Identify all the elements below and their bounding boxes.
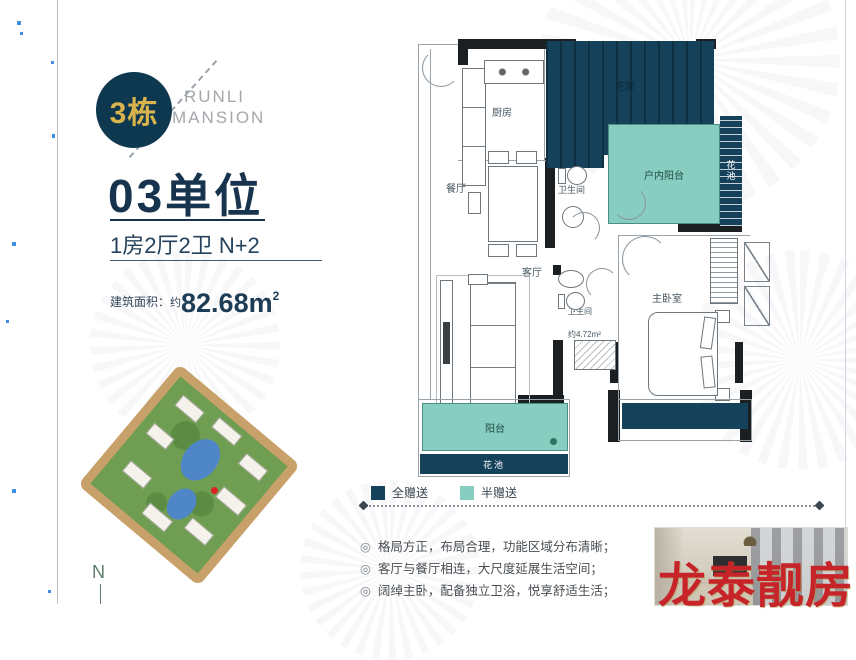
chair [516,151,537,164]
sink [558,270,584,288]
area-approx: 约 [170,297,181,309]
apartment-left-wall [430,49,431,399]
artifact-mark [17,21,21,25]
artifact-mark [48,590,51,593]
feature-text: 阔绰主卧，配备独立卫浴，悦享舒适生活； [378,580,616,602]
artifact-mark [52,134,55,138]
feature-text: 客厅与餐厅相连，大尺度延展生活空间； [378,558,603,580]
kitchen-label: 厨房 [492,104,512,119]
sofa-armrest [468,274,488,285]
built-area: 建筑面积：约82.68m2 [110,288,279,319]
chair [516,244,537,257]
legend-half-gift-swatch [460,486,474,500]
area-superscript: 2 [273,289,280,303]
chair [468,192,481,214]
indoor-balcony-label: 户内阳台 [644,167,684,182]
bullet-icon: ◎ [360,536,371,558]
toilet-tank [558,294,565,309]
feature-item: ◎ 格局方正，布局合理，功能区域分布清晰； [360,536,615,558]
wall-segment [735,342,743,383]
bedroom-wall [618,235,619,403]
wall-segment [545,158,555,248]
artifact-mark [20,32,23,35]
right-page-edge [845,0,846,604]
entrance-door-arc [422,49,460,87]
chair [488,151,509,164]
wall-segment [458,49,468,65]
left-page-edge [57,0,58,604]
flower-bed-bottom-zone: 花池 [420,454,568,474]
chair [488,244,509,257]
bathroom-lower-area: 约4.72m² [568,329,601,340]
area-label: 建筑面积： [110,295,170,309]
flower-bed-right-zone: 花池 [720,116,742,226]
bullet-icon: ◎ [360,558,371,580]
legend-full-gift-swatch [371,486,385,500]
brand-line1: RUNLI [172,86,265,107]
bedroom-door-arc [622,236,668,282]
stove [484,60,544,84]
feature-item: ◎ 客厅与餐厅相连，大尺度延展生活空间； [360,558,615,580]
flyer-page: { "badge": { "building": "3栋" }, "brand"… [0,0,856,604]
separator-end-dot [815,501,825,511]
toilet [567,166,587,185]
bedroom-wall [618,235,750,236]
master-bedroom-label: 主卧室 [652,290,682,305]
bullet-icon: ◎ [360,580,371,602]
flower-bed-right-label: 花池 [725,160,738,182]
bathroom-upper-label: 卫生间 [558,183,585,196]
flower-rack-zone [546,120,604,168]
kitchen-cabinet [462,68,486,186]
sofa [470,282,516,410]
building-badge-label: 3栋 [110,88,159,132]
shower [574,340,616,370]
wardrobe [710,238,738,304]
flower-rack-label: 花架 [615,78,635,93]
brand-line2: MANSION [172,108,265,127]
toilet-tank [558,168,566,184]
artifact-mark [51,61,54,64]
legend-half-gift-label: 半赠送 [481,484,517,501]
unit-layout: 1房2厅2卫 N+2 [110,228,260,260]
area-value: 82.68m [181,288,273,318]
balcony-zone: 阳台 [422,403,568,451]
dotted-separator [366,505,818,507]
balcony-dot [550,438,557,445]
layout-underline [110,260,322,261]
brand-name: RUNLI MANSION [172,86,265,128]
compass-needle [100,584,101,604]
door-arc [586,268,618,300]
door-arc [568,212,600,244]
plan-legend: 全赠送 半赠送 [371,484,517,501]
watermark-text: 龙泰靓房 [658,546,854,616]
plan-outline [418,44,460,45]
toilet [566,292,585,310]
window-symbol [744,286,770,326]
photo-chandelier [739,530,761,546]
feature-item: ◎ 阔绰主卧，配备独立卫浴，悦享舒适生活； [360,580,615,602]
site-plan-image [86,390,302,604]
legend-full-gift-label: 全赠送 [392,484,428,501]
title-underline [110,219,265,221]
tv [443,322,450,364]
compass-n-label: N [92,562,105,583]
wall-segment [553,340,563,402]
artifact-mark [12,242,16,246]
flower-bed-bottom-label: 花池 [483,458,505,471]
window-symbol [744,242,770,282]
artifact-mark [12,489,16,493]
flower-bed-strip [622,403,748,429]
kitchen-wall [544,49,545,161]
balcony-label: 阳台 [485,420,505,435]
feature-list: ◎ 格局方正，布局合理，功能区域分布清晰； ◎ 客厅与餐厅相连，大尺度延展生活空… [360,536,615,602]
door-arc [612,186,646,220]
dining-table [488,166,538,242]
unit-title: 03单位 [108,160,263,226]
feature-text: 格局方正，布局合理，功能区域分布清晰； [378,536,616,558]
floor-plan: 花架 花池 厨房 餐厅 卫生间 户内阳台 客厅 卫生间 约4.72m² 主卧室 [410,30,774,482]
site-plan-compound [78,364,301,587]
dining-label: 餐厅 [446,180,466,195]
artifact-mark [6,320,9,323]
building-badge: 3栋 [96,72,172,148]
